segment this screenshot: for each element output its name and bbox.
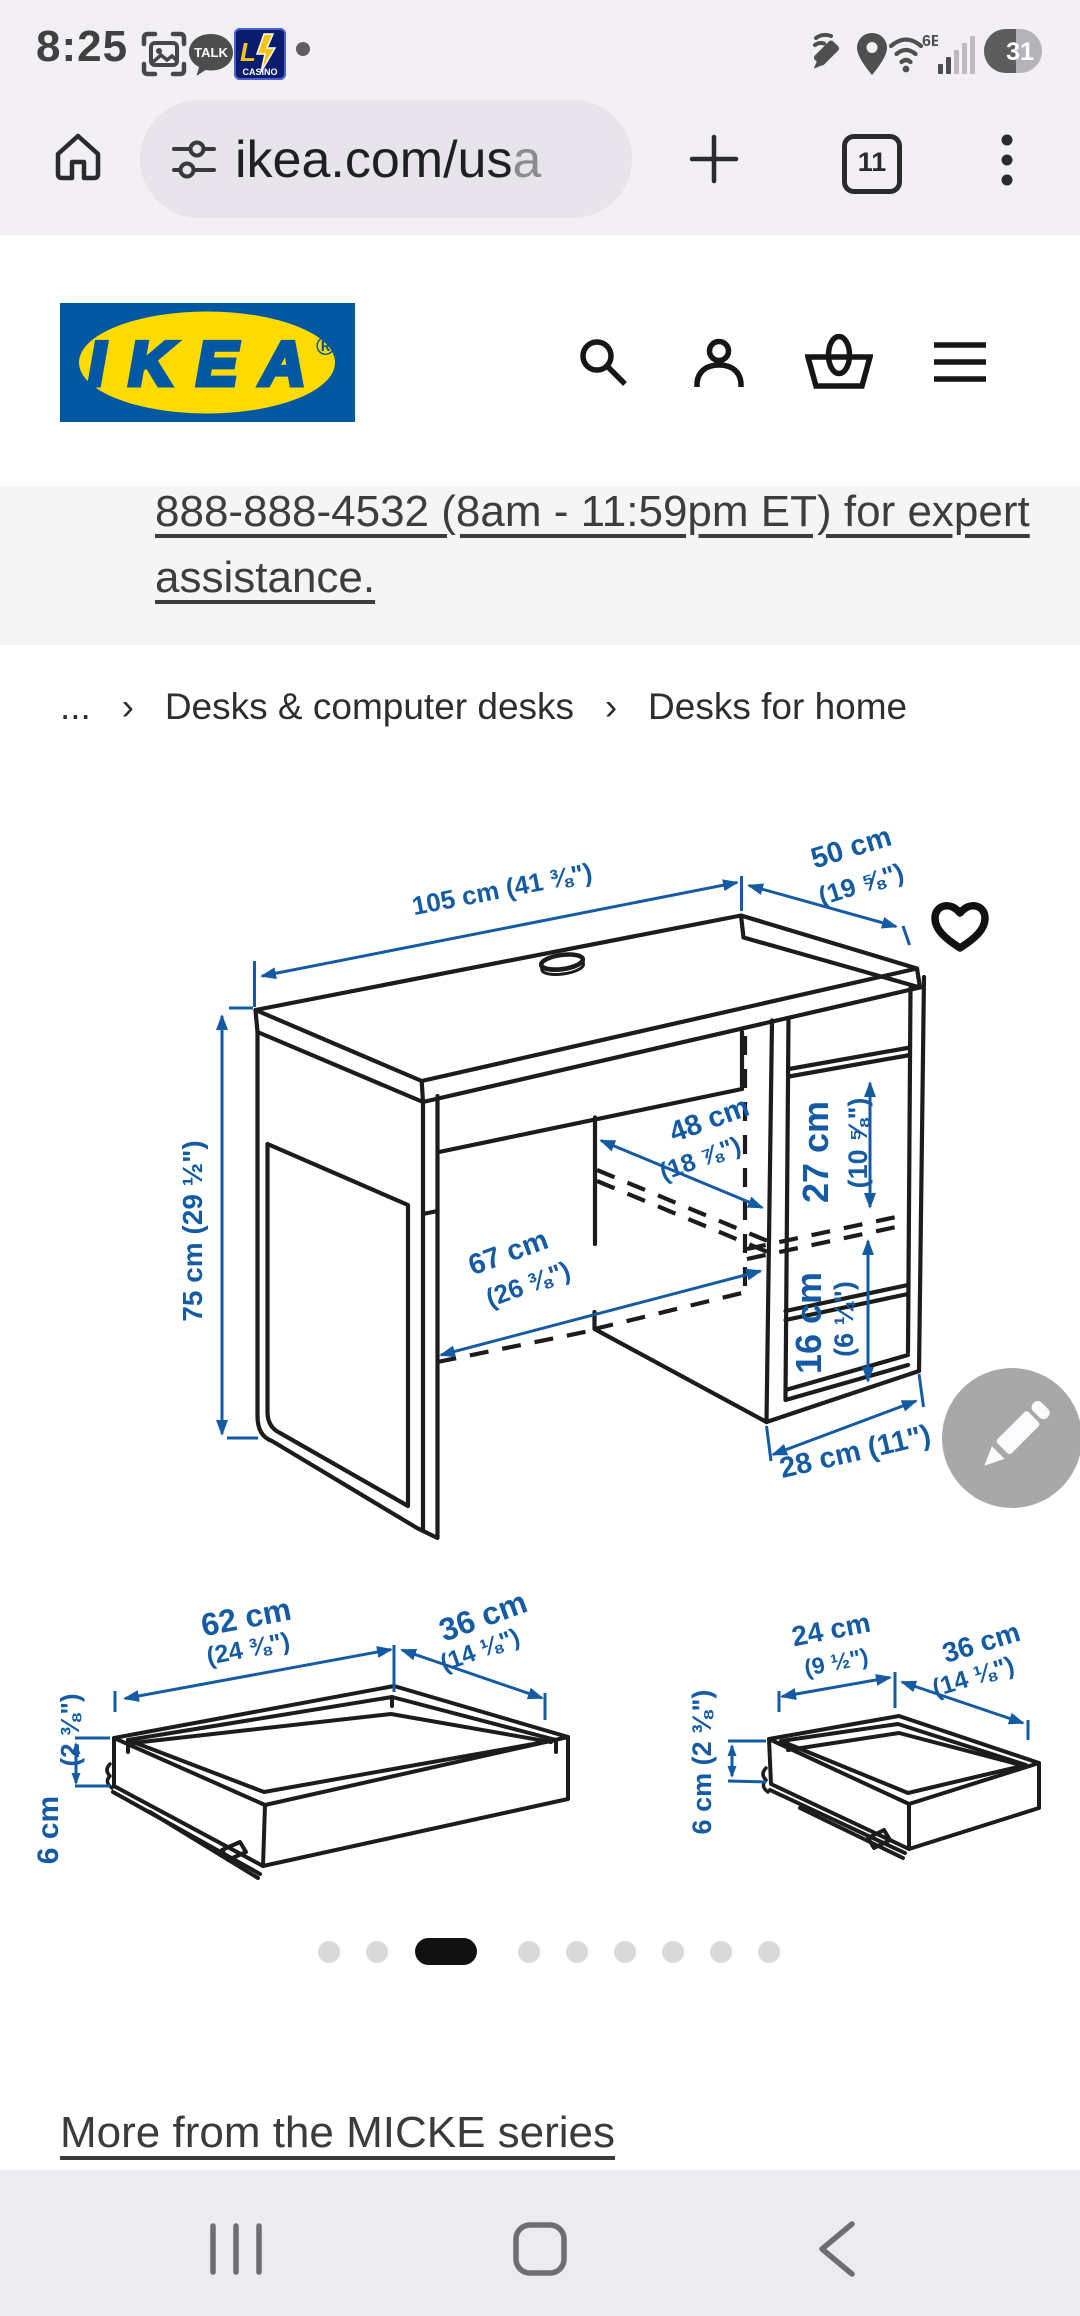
svg-text:6 cm (2 ⅜"): 6 cm (2 ⅜"): [687, 1690, 717, 1835]
svg-text:6E: 6E: [922, 33, 938, 50]
svg-text:®: ®: [316, 331, 335, 361]
svg-text:(6 ¼"): (6 ¼"): [829, 1281, 859, 1357]
svg-text:CASINO: CASINO: [242, 67, 277, 77]
svg-text:(10 ⅝"): (10 ⅝"): [843, 1098, 873, 1189]
svg-text:TALK: TALK: [194, 45, 228, 60]
svg-text:27 cm: 27 cm: [795, 1101, 836, 1203]
svg-text:16 cm: 16 cm: [788, 1272, 829, 1374]
svg-text:75 cm (29 ½"): 75 cm (29 ½"): [177, 1140, 208, 1321]
svg-text:31: 31: [1006, 38, 1034, 66]
svg-text:(2 ⅜"): (2 ⅜"): [55, 1693, 85, 1766]
svg-text:105 cm (41 ⅜"): 105 cm (41 ⅜"): [409, 857, 594, 921]
svg-text:L: L: [240, 37, 256, 67]
svg-text:6 cm: 6 cm: [32, 1796, 65, 1864]
svg-text:28 cm (11"): 28 cm (11"): [777, 1419, 934, 1485]
